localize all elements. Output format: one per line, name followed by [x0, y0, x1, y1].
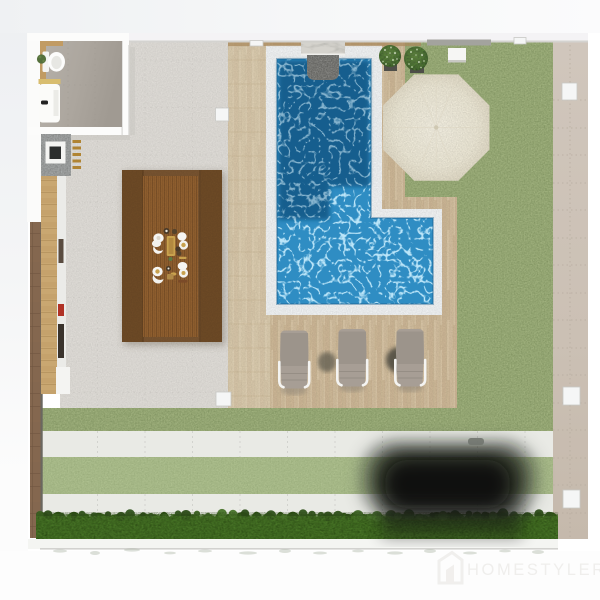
svg-text:HOMESTYLER: HOMESTYLER [467, 561, 600, 579]
